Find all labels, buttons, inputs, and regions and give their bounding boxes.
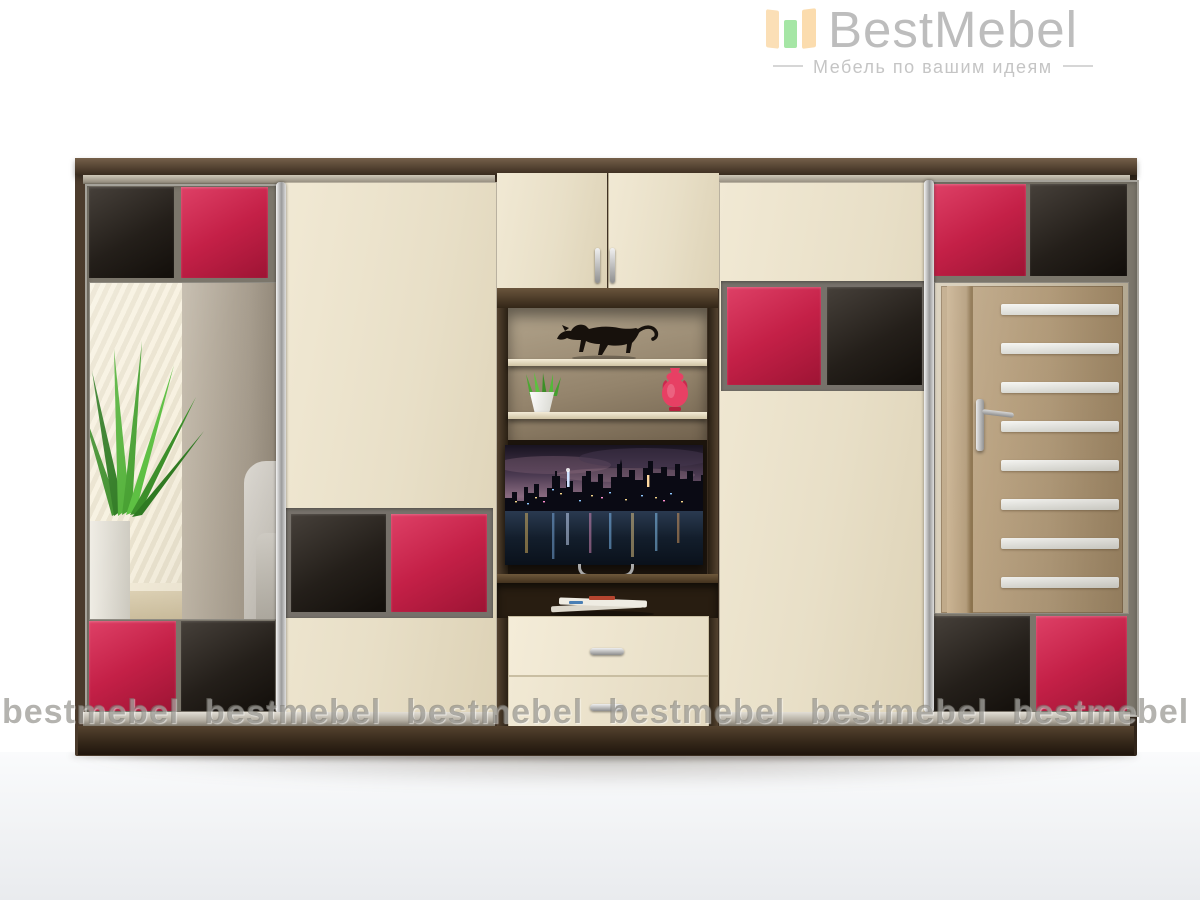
tagline-dash-right bbox=[1063, 65, 1093, 67]
mirror-panel-right bbox=[934, 282, 1129, 614]
cabinet-bottom-band bbox=[497, 288, 718, 308]
door-frame-stile bbox=[276, 182, 286, 714]
cabinet-handle bbox=[595, 248, 600, 283]
brand-tagline: Мебель по вашим идеям bbox=[813, 57, 1053, 77]
black-glass-panel bbox=[827, 287, 922, 385]
watermark: bestmebel bbox=[1012, 693, 1189, 732]
red-glass-panel bbox=[934, 184, 1026, 276]
red-glass-panel bbox=[391, 514, 487, 612]
red-vase bbox=[661, 367, 689, 413]
watermark: bestmebel bbox=[2, 693, 179, 732]
black-glass-panel bbox=[291, 514, 386, 612]
mirror-sheen bbox=[935, 283, 1128, 613]
wardrobe-door-cream-left bbox=[283, 182, 497, 715]
red-glass-panel bbox=[727, 287, 821, 385]
watermark: bestmebel bbox=[810, 693, 987, 732]
logo-bar-icon bbox=[766, 9, 779, 49]
brand-logo: BestMebel Мебель по вашим идеям bbox=[0, 0, 1200, 90]
black-glass-panel bbox=[89, 187, 174, 278]
watermark: bestmebel bbox=[204, 693, 381, 732]
top-cabinet-door-left bbox=[497, 173, 607, 289]
magazines bbox=[545, 592, 659, 618]
niche-side-panel bbox=[708, 308, 718, 732]
black-glass-panel bbox=[1030, 184, 1127, 276]
tv-screen-cityscape bbox=[505, 445, 703, 565]
wardrobe-door-cream-right bbox=[719, 182, 932, 715]
niche-shelf bbox=[508, 412, 707, 419]
cabinet-handle bbox=[610, 248, 615, 283]
red-glass-panel bbox=[181, 187, 268, 278]
tv bbox=[505, 445, 703, 565]
logo-bar-icon bbox=[784, 20, 797, 48]
brand-name: BestMebel bbox=[828, 4, 1078, 55]
mirror-sheen bbox=[90, 283, 278, 619]
panther-figurine bbox=[552, 317, 660, 361]
door-frame-stile bbox=[924, 180, 934, 713]
drawer-handle bbox=[590, 648, 624, 655]
logo-bar-icon bbox=[802, 8, 816, 49]
mirror-panel-left bbox=[89, 282, 279, 620]
watermark: bestmebel bbox=[406, 693, 583, 732]
tagline-dash-left bbox=[773, 65, 803, 67]
top-cabinet-door-right bbox=[608, 173, 719, 289]
drawer-front-top bbox=[508, 616, 709, 676]
product-photo-page: BestMebel Мебель по вашим идеям bbox=[0, 0, 1200, 900]
tv-shelf-board bbox=[497, 574, 718, 583]
brand-tagline-row: Мебель по вашим идеям bbox=[763, 57, 1103, 78]
niche-shelf bbox=[508, 359, 707, 366]
watermark: bestmebel bbox=[608, 693, 785, 732]
